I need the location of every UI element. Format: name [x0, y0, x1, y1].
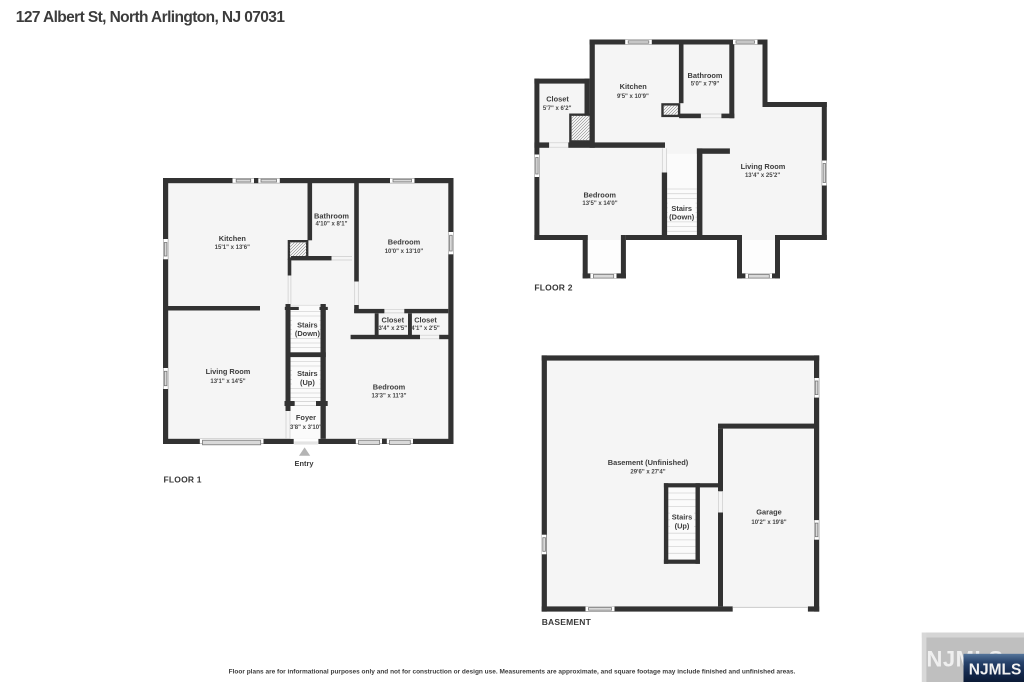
svg-text:10'0" x 13'10": 10'0" x 13'10" — [385, 249, 424, 255]
svg-text:Entry: Entry — [295, 459, 315, 468]
svg-text:15'1" x 13'6": 15'1" x 13'6" — [215, 245, 250, 251]
svg-text:9'5" x 10'9": 9'5" x 10'9" — [617, 94, 649, 100]
svg-text:13'5" x 14'0": 13'5" x 14'0" — [582, 201, 617, 207]
svg-text:Bathroom: Bathroom — [314, 211, 349, 220]
svg-text:Stairs: Stairs — [297, 320, 318, 329]
svg-text:3'8" x 3'10": 3'8" x 3'10" — [290, 425, 322, 431]
svg-text:Closet: Closet — [414, 315, 437, 324]
svg-text:Bathroom: Bathroom — [688, 71, 723, 80]
svg-text:(Up): (Up) — [300, 378, 315, 387]
svg-text:5'7" x 6'2": 5'7" x 6'2" — [543, 106, 572, 112]
svg-text:(Up): (Up) — [675, 521, 690, 530]
svg-text:(Down): (Down) — [669, 213, 695, 222]
svg-text:5'0" x 7'9": 5'0" x 7'9" — [691, 82, 720, 88]
svg-text:BASEMENT: BASEMENT — [542, 617, 592, 627]
svg-text:4'10" x 8'1": 4'10" x 8'1" — [316, 222, 348, 228]
svg-text:Closet: Closet — [382, 315, 405, 324]
svg-text:29'6" x 27'4": 29'6" x 27'4" — [630, 470, 665, 476]
svg-text:Basement (Unfinished): Basement (Unfinished) — [608, 458, 689, 467]
svg-text:Floor plans are for informatio: Floor plans are for informational purpos… — [229, 669, 796, 676]
svg-text:Stairs: Stairs — [672, 513, 693, 522]
svg-text:(Down): (Down) — [295, 329, 321, 338]
svg-text:Kitchen: Kitchen — [620, 82, 648, 91]
svg-text:FLOOR 1: FLOOR 1 — [164, 475, 202, 485]
svg-text:Living Room: Living Room — [206, 367, 251, 376]
svg-text:Bedroom: Bedroom — [388, 238, 421, 247]
svg-text:10'2" x 19'8": 10'2" x 19'8" — [751, 520, 786, 526]
svg-text:4'1" x 2'5": 4'1" x 2'5" — [411, 326, 440, 332]
svg-text:Stairs: Stairs — [297, 369, 318, 378]
svg-text:Closet: Closet — [546, 94, 569, 103]
svg-text:Foyer: Foyer — [296, 413, 316, 422]
svg-text:Stairs: Stairs — [671, 204, 692, 213]
svg-text:NJMLS: NJMLS — [969, 661, 1022, 678]
svg-text:13'4" x 25'2": 13'4" x 25'2" — [745, 173, 780, 179]
svg-text:Kitchen: Kitchen — [219, 234, 247, 243]
svg-text:Bedroom: Bedroom — [373, 382, 406, 391]
svg-text:Living Room: Living Room — [741, 162, 786, 171]
svg-text:13'3" x 11'3": 13'3" x 11'3" — [372, 394, 407, 400]
svg-text:Bedroom: Bedroom — [583, 191, 616, 200]
svg-text:Garage: Garage — [756, 508, 781, 517]
svg-text:13'1" x 14'5": 13'1" x 14'5" — [210, 379, 245, 385]
svg-text:FLOOR 2: FLOOR 2 — [534, 283, 572, 293]
svg-text:3'4" x 2'5": 3'4" x 2'5" — [379, 326, 408, 332]
svg-text:127 Albert St, North Arlington: 127 Albert St, North Arlington, NJ 07031 — [16, 9, 286, 26]
